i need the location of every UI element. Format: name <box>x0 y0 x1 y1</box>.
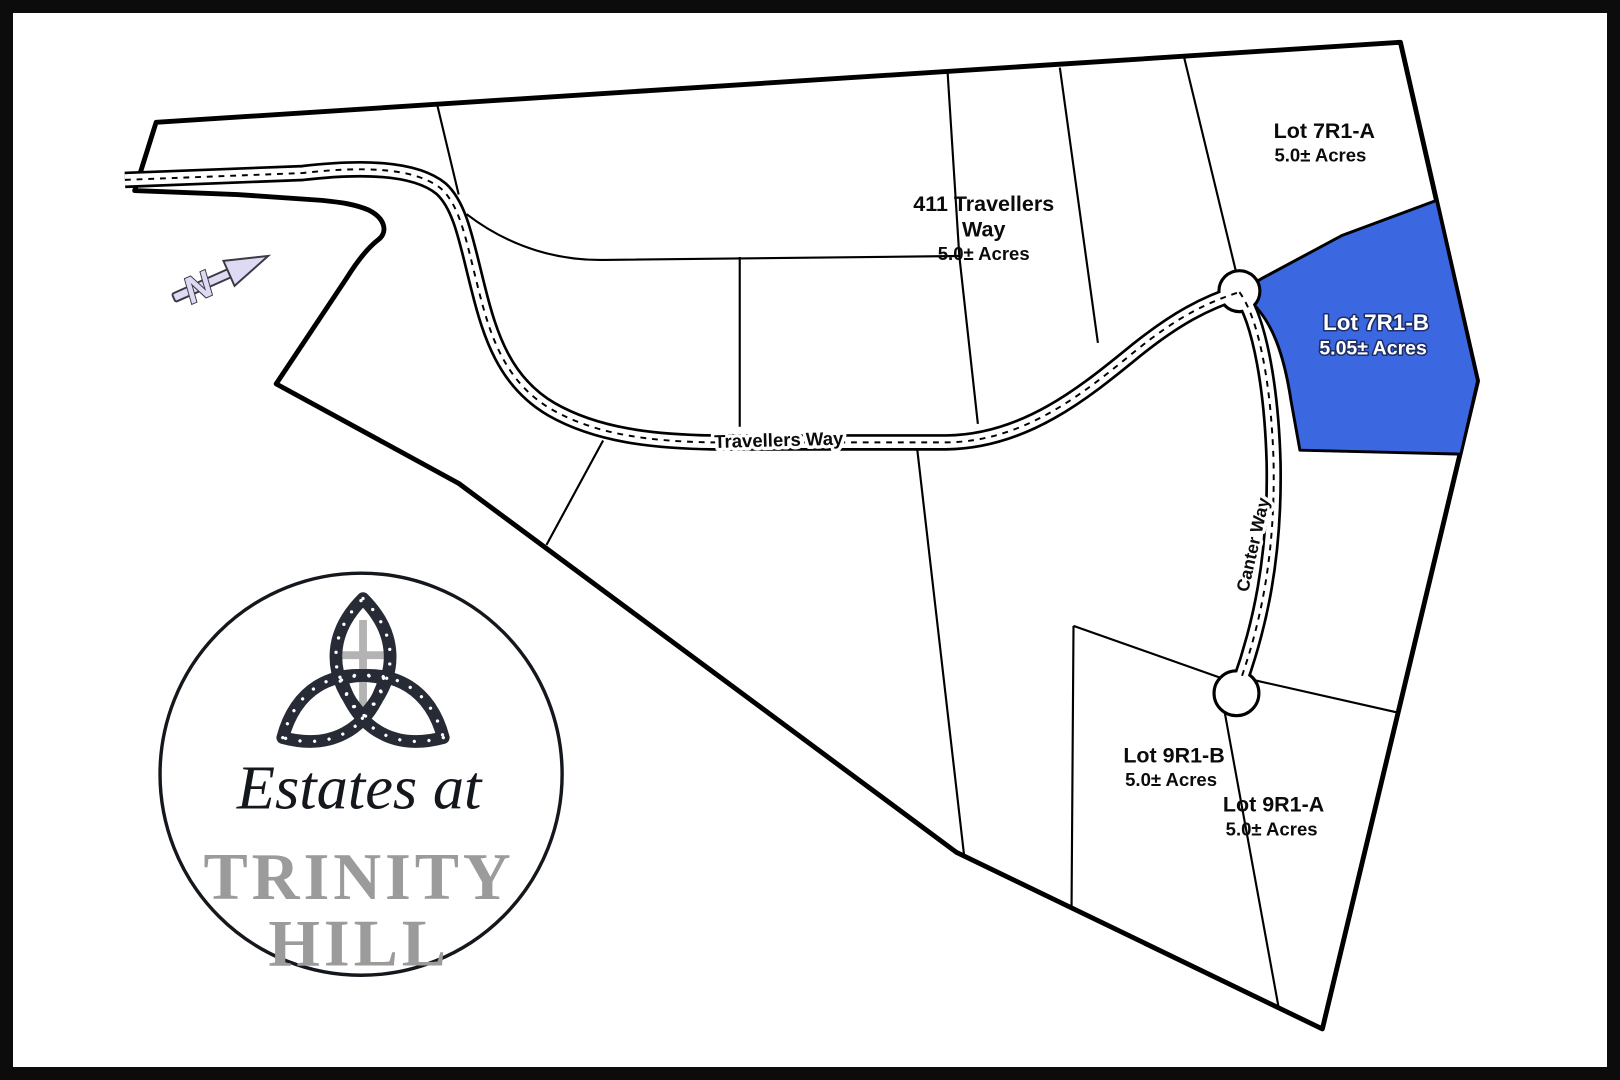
lot-9r1a-name: Lot 9R1-A <box>1223 792 1324 816</box>
north-arrow-head-icon <box>223 243 273 285</box>
lot-9r1b-name: Lot 9R1-B <box>1123 744 1224 768</box>
intersection-knob-surface <box>1222 274 1256 308</box>
logo-trinity-text: TRINITY <box>203 841 514 914</box>
travellers-way-label: Travellers Way <box>714 428 844 452</box>
logo: Estates at TRINITY HILL <box>160 573 562 980</box>
lot-411-label-line2: Way <box>962 217 1005 241</box>
lot-9r1a-acres: 5.0± Acres <box>1226 819 1318 840</box>
lot-7r1b-name: Lot 7R1-B <box>1323 310 1429 335</box>
north-arrow: N <box>165 237 277 317</box>
logo-hill-text: HILL <box>268 908 450 981</box>
lot-7r1b-acres: 5.05± Acres <box>1319 338 1427 360</box>
lot-7r1a-name: Lot 7R1-A <box>1274 119 1375 143</box>
lot-7r1a-acres: 5.0± Acres <box>1274 144 1366 165</box>
lot-411-acres: 5.0± Acres <box>938 243 1030 264</box>
plat-map-sheet: 411 Travellers Way 5.0± Acres Lot 7R1-A … <box>0 0 1620 1080</box>
cul-de-sac-surface <box>1217 674 1255 712</box>
north-arrow-letter: N <box>180 261 216 312</box>
logo-script-text: Estates at <box>236 752 483 822</box>
plat-map-svg: 411 Travellers Way 5.0± Acres Lot 7R1-A … <box>13 13 1607 1067</box>
lot-411-label-line1: 411 Travellers <box>913 192 1054 216</box>
lot-9r1b-acres: 5.0± Acres <box>1125 769 1217 790</box>
